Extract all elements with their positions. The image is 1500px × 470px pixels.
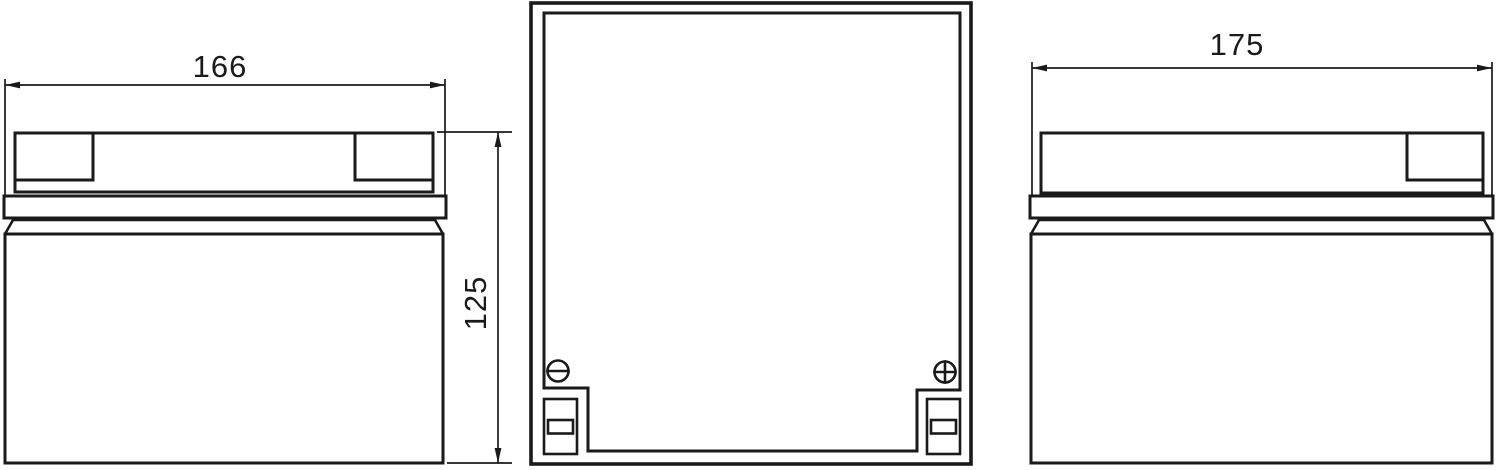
top-cover-outline [544, 13, 960, 451]
top-view [531, 3, 971, 464]
front-chamfer-left [5, 220, 13, 234]
top-terminal-slot-right [931, 420, 956, 434]
side-terminal-housing [1407, 133, 1483, 180]
side-chamfer-left [1031, 220, 1039, 234]
arrowhead-right [430, 82, 445, 89]
side-cover-flange [1030, 196, 1493, 218]
arrowhead-up [495, 132, 502, 147]
front-view [4, 133, 446, 463]
arrowhead-left [1032, 65, 1047, 72]
arrowhead-left [5, 82, 20, 89]
side-width-value: 175 [1210, 27, 1265, 62]
dim-side-width: 175 [1032, 27, 1492, 195]
minus-screw-terminal-icon [548, 361, 569, 382]
battery-technical-drawing: 166 125 [0, 0, 1500, 470]
arrowhead-right [1477, 65, 1492, 72]
front-width-value: 166 [193, 49, 248, 84]
side-body [1031, 234, 1492, 463]
plus-screw-terminal-icon [935, 362, 956, 383]
dim-front-height: 125 [437, 132, 512, 463]
side-chamfer-right [1484, 220, 1492, 234]
front-terminal-housing-right [355, 133, 433, 180]
three-view-drawing: 166 125 [0, 0, 1500, 470]
dim-front-width: 166 [5, 49, 445, 195]
front-terminal-housing-left [15, 133, 93, 180]
side-view [1030, 133, 1493, 463]
front-cover [15, 133, 433, 192]
top-outline [531, 3, 971, 464]
top-terminal-slot-left [548, 420, 573, 434]
front-body [5, 234, 443, 463]
front-cover-flange [4, 196, 446, 218]
front-height-value: 125 [458, 276, 493, 331]
front-chamfer-right [435, 220, 443, 234]
side-cover [1041, 133, 1483, 193]
arrowhead-down [495, 448, 502, 463]
